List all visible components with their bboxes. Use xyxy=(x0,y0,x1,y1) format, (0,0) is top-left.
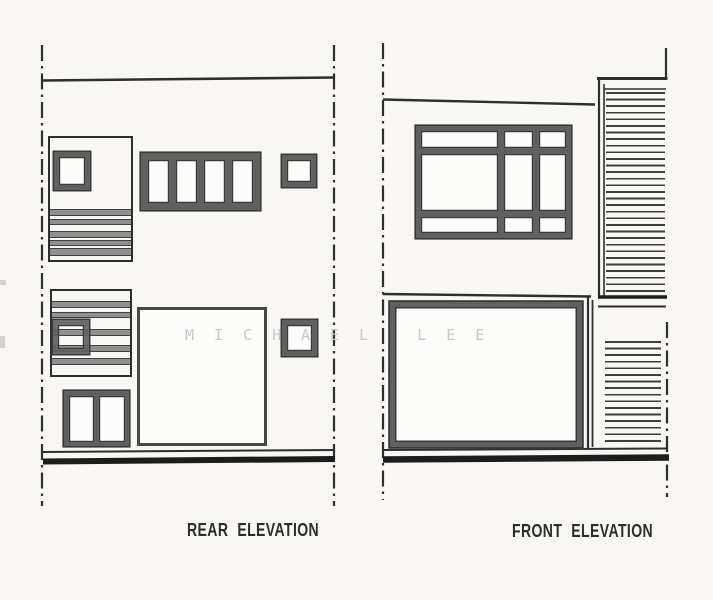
rear-louver-band xyxy=(52,312,130,318)
window-pane xyxy=(504,131,533,148)
front-ground-line-thin xyxy=(383,449,668,451)
scan-artifact xyxy=(0,280,6,285)
door-panel xyxy=(99,396,125,442)
rear-tower-siding-band xyxy=(50,240,131,246)
rear-louver-window xyxy=(53,320,89,354)
window-pane xyxy=(539,217,566,233)
window-pane xyxy=(421,217,498,233)
window-pane xyxy=(421,154,498,211)
window-pane xyxy=(539,131,566,148)
door-panel xyxy=(69,396,95,442)
window-pane xyxy=(232,160,253,203)
rear-louver-band xyxy=(52,358,130,365)
front-storefront-window xyxy=(390,302,582,447)
window-pane xyxy=(148,160,169,203)
watermark-text: MICHAEL LEE xyxy=(185,326,504,344)
front-roof-line xyxy=(383,100,595,105)
rear-tower-siding-band xyxy=(50,231,131,238)
rear-tower-window xyxy=(54,152,90,190)
rear-double-door xyxy=(64,391,129,446)
rear-louver-band xyxy=(52,301,130,308)
rear-tower-siding-band xyxy=(50,209,131,216)
rear-roof-line xyxy=(43,78,335,81)
window-pane xyxy=(421,131,498,148)
window-pane xyxy=(539,154,566,211)
front-grid-window xyxy=(416,126,571,238)
front-elevation-label: FRONT ELEVATION xyxy=(512,521,653,542)
rear-elevation-label: REAR ELEVATION xyxy=(187,520,319,541)
front-lower-louver-panel xyxy=(605,341,661,444)
rear-ground-line-thick xyxy=(43,459,335,462)
window-pane xyxy=(176,160,197,203)
window-pane xyxy=(504,217,533,233)
front-ground-line-thick xyxy=(383,458,669,460)
rear-ribbon-window xyxy=(141,153,260,210)
rear-upper-square-window xyxy=(282,155,316,187)
front-upper-louver-panel xyxy=(606,92,665,294)
rear-tower-siding-band xyxy=(50,248,131,256)
front-wall-mid-line xyxy=(383,294,591,297)
rear-stair-tower-box xyxy=(48,136,133,262)
rear-louver-box xyxy=(50,289,132,377)
scan-artifact xyxy=(0,336,5,348)
window-pane xyxy=(504,154,533,211)
rear-ground-line-thin xyxy=(43,450,335,452)
window-pane xyxy=(204,160,225,203)
rear-tower-siding-band xyxy=(50,219,131,225)
blueprint-canvas: MICHAEL LEE REAR ELEVATION FRONT ELEVATI… xyxy=(0,0,713,600)
